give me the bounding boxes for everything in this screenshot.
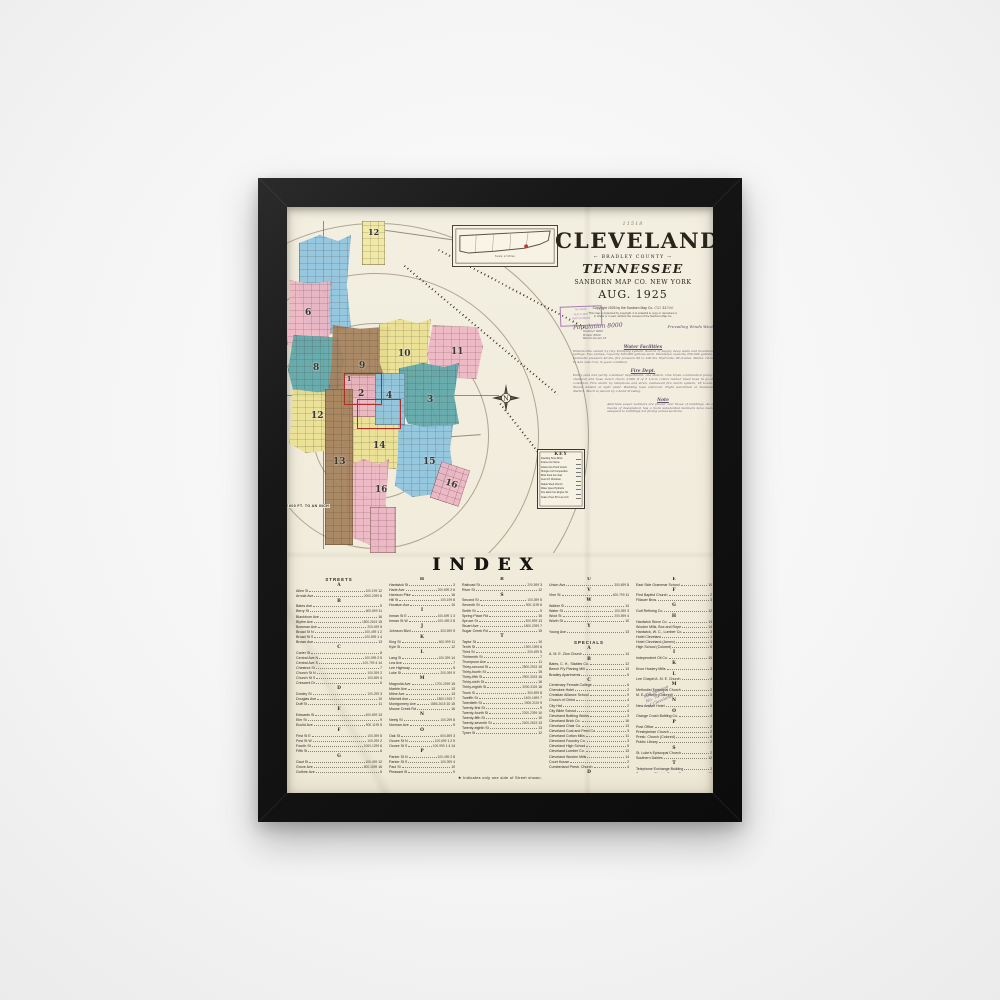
index-title: INDEX	[347, 555, 627, 575]
map-scale-label: 600 FT. TO AN INCH	[288, 504, 330, 508]
handwritten-notes: Population 8000 Prevailing Winds West Su…	[573, 323, 713, 414]
ward-12-tag: 12	[362, 221, 385, 265]
picture-frame: 12 7 6 8 9 10 11 2 4 3 12 13	[258, 178, 742, 822]
index-entry: Tyner St12	[462, 731, 542, 736]
ward-13: 13	[325, 389, 353, 545]
water-facilities-text: Waterworks owned by city. Pumping system…	[573, 350, 713, 366]
ward-16-south	[370, 507, 396, 553]
index-entry: Guthrie Ave5	[296, 770, 382, 773]
compass-rose: N	[491, 383, 521, 417]
index-entry: Tennessee Electric Power Co.12	[636, 772, 712, 773]
map-date: AUG. 1925	[555, 288, 711, 301]
cleveland-location-dot	[524, 244, 528, 248]
winds-note: Prevailing Winds West	[668, 324, 713, 329]
district-red-outline	[357, 399, 401, 429]
title-block: 11518 CLEVELAND ← BRADLEY COUNTY → TENNE…	[555, 221, 711, 319]
tennessee-inset-map: Scale of Miles	[452, 225, 558, 267]
map-title-city: CLEVELAND	[555, 229, 711, 254]
publisher-line: SANBORN MAP CO. NEW YORK	[555, 279, 711, 286]
inset-caption: Scale of Miles	[453, 255, 557, 258]
index-column: RRailroad St200-5993River St12SSecond St…	[462, 577, 542, 773]
note-text: Alternate paper numbers are placed over …	[607, 403, 713, 415]
fire-dept-text: Partly paid and partly volunteer departm…	[573, 374, 713, 394]
map-sheet: 12 7 6 8 9 10 11 2 4 3 12 13	[287, 207, 713, 793]
ward-3: 3	[399, 363, 459, 429]
frame-miter	[712, 177, 742, 207]
frame-miter	[712, 792, 742, 822]
index-columns: STREETSAAllen St100-19912Arnold Ave2000-…	[296, 577, 706, 773]
frame-miter	[258, 792, 288, 822]
serial-scrawl: CSI 44506	[654, 306, 673, 310]
key-line: Scale of feet 50 to an inch	[541, 496, 581, 500]
index-column: UUnion Ave300-6998VVine St400-79911WWalk…	[549, 577, 629, 773]
index-column: HHardwick St3Harle Ave200-8992 6Harrison…	[389, 577, 455, 773]
map-title-state: TENNESSEE	[555, 261, 711, 276]
map-key: KEY Dwelling Store BrickFrame Iron Stone…	[537, 449, 585, 509]
key-lines: Dwelling Store BrickFrame Iron StoneAdob…	[541, 457, 581, 500]
map-title-county: ← BRADLEY COUNTY →	[555, 255, 711, 260]
index-letter: D	[549, 770, 629, 773]
index-column: STREETSAAllen St100-19912Arnold Ave2000-…	[296, 577, 382, 773]
handwritten-number: 11518	[555, 221, 711, 227]
library-stamp: No 11518 AUG 6 1925 MAP DIVISION	[560, 305, 603, 326]
frame-miter	[258, 177, 288, 207]
tennessee-outline	[457, 229, 553, 255]
population-detail: Summer 9000 Winter 8000 Wards shown 16	[583, 330, 713, 341]
index-footnote: ★ Indicates only one side of Street show…	[287, 775, 713, 780]
compass-north-letter: N	[503, 394, 509, 402]
index-entry: Pleasant St9	[389, 770, 455, 773]
